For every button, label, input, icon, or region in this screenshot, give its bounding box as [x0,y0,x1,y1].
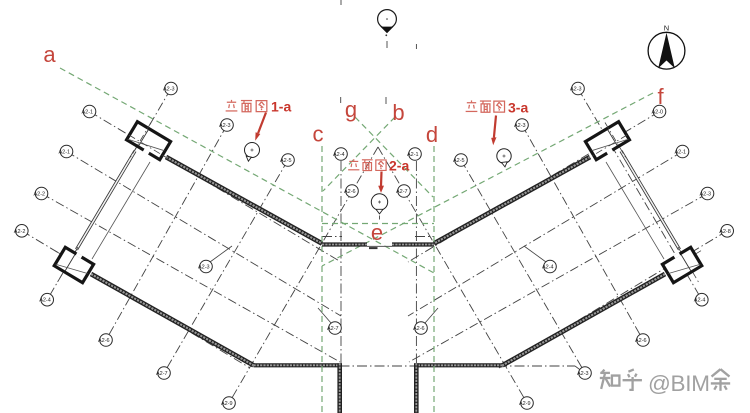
svg-text:d: d [426,122,438,147]
svg-text:A2-3: A2-3 [219,123,231,129]
svg-text:A2-9: A2-9 [221,401,233,407]
svg-text:A2-4: A2-4 [542,265,554,271]
svg-text:N: N [664,24,669,33]
svg-text:@BIM: @BIM [648,371,710,396]
svg-text:A2-5: A2-5 [453,158,465,164]
svg-text:b: b [392,100,404,125]
svg-text:A2-8: A2-8 [719,229,731,235]
svg-text:2-a: 2-a [389,158,409,174]
svg-text:A2-5: A2-5 [280,158,292,164]
svg-text:A2-6: A2-6 [635,338,647,344]
svg-text:3-a: 3-a [508,100,528,116]
svg-text:A2-2: A2-2 [14,229,26,235]
svg-text:e: e [371,220,383,245]
svg-text:A2-3: A2-3 [163,87,175,93]
svg-text:A2-3: A2-3 [198,265,210,271]
svg-text:A2-3: A2-3 [577,371,589,377]
svg-text:1-a: 1-a [271,99,291,115]
svg-text:g: g [345,97,357,122]
svg-text:A2-6: A2-6 [413,326,425,332]
svg-text:A2-1: A2-1 [82,110,94,116]
svg-text:A2-4: A2-4 [39,298,51,304]
svg-text:a: a [43,42,56,67]
svg-text:A2-0: A2-0 [652,110,664,116]
svg-text:A2-6: A2-6 [344,189,356,195]
svg-text:A2-4: A2-4 [694,298,706,304]
svg-text:A2-7: A2-7 [327,326,339,332]
svg-text:A2-3: A2-3 [570,87,582,93]
svg-text:A2-6: A2-6 [98,338,110,344]
svg-text:A2-1: A2-1 [407,152,419,158]
svg-text:f: f [657,84,664,109]
svg-text:A2-1: A2-1 [675,150,687,156]
svg-text:A2-3: A2-3 [514,123,526,129]
svg-text:A2-7: A2-7 [156,371,168,377]
svg-text:A2-7: A2-7 [396,189,408,195]
svg-text:A2-4: A2-4 [333,152,345,158]
svg-text:A2-3: A2-3 [700,192,712,198]
svg-text:A2-2: A2-2 [34,192,46,198]
svg-text:A2-9: A2-9 [519,401,531,407]
svg-text:A2-1: A2-1 [59,150,71,156]
svg-text:c: c [313,122,324,147]
